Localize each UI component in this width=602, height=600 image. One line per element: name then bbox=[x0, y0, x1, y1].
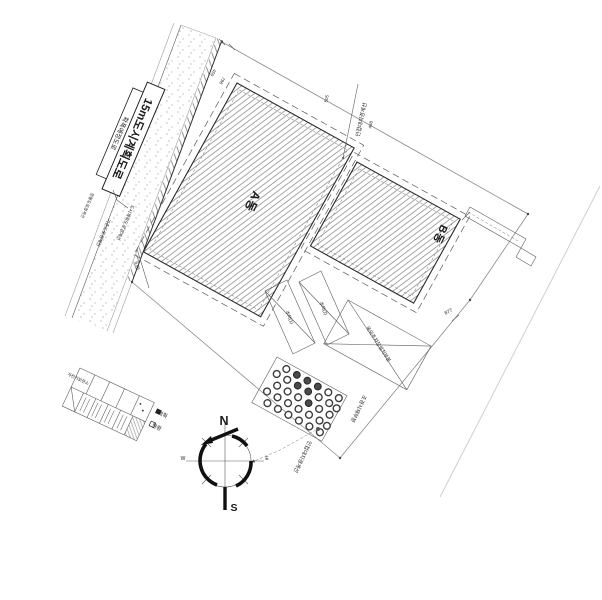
faint-fold-line bbox=[440, 186, 600, 497]
bike-storage-table: 자전거보관소 계획 현황 bbox=[54, 364, 170, 448]
east-label: E bbox=[265, 456, 269, 462]
compass-bold-arc-southeast bbox=[236, 461, 251, 486]
bike-storage-label: 자전거보관소 bbox=[66, 371, 90, 387]
ramp-2-label: 주차(2) bbox=[317, 301, 329, 317]
legend: 계획 현황 bbox=[148, 407, 169, 432]
dim-488: 488 bbox=[367, 120, 374, 129]
upper-boundary-label: 인접대지경계선 bbox=[354, 102, 369, 138]
site-plan-svg: 15m도시계획도로 확폭예정도로 기존도로경계선 도시계획도로경계선 현황도로경… bbox=[0, 0, 602, 600]
south-label: S bbox=[230, 502, 237, 514]
boundary-east bbox=[470, 214, 528, 300]
dim-877: 877 bbox=[444, 308, 454, 317]
ramp-1-label: 주차(1) bbox=[283, 310, 295, 326]
dim-505: 505 bbox=[323, 94, 330, 103]
lower-boundary-label: 인접대지경계선 bbox=[292, 439, 314, 474]
north-compass: N S W E bbox=[181, 414, 270, 514]
outdoor-parking-label: 옥외주차장설치부분 bbox=[364, 325, 393, 364]
site-plan-drawing: 15m도시계획도로 확폭예정도로 기존도로경계선 도시계획도로경계선 현황도로경… bbox=[0, 0, 602, 600]
dim-798: 798 bbox=[218, 76, 226, 85]
compass-bold-arc-west bbox=[200, 444, 217, 485]
road-edge-outer-label: 현황도로경계선 bbox=[79, 192, 96, 220]
landscape-label: 조경식재부분 bbox=[349, 394, 369, 424]
landscape-area bbox=[252, 357, 348, 441]
legend-label-plan: 계획 bbox=[157, 409, 169, 420]
north-label: N bbox=[219, 414, 228, 428]
compass-bold-arc-northeast bbox=[232, 436, 247, 446]
compass-needle-arrowhead bbox=[201, 436, 213, 445]
boundary-southeast bbox=[340, 300, 470, 458]
legend-label-existing: 현황 bbox=[151, 421, 163, 432]
lower-boundary-callout: 인접대지경계선 bbox=[252, 427, 320, 474]
west-label: W bbox=[181, 456, 186, 462]
